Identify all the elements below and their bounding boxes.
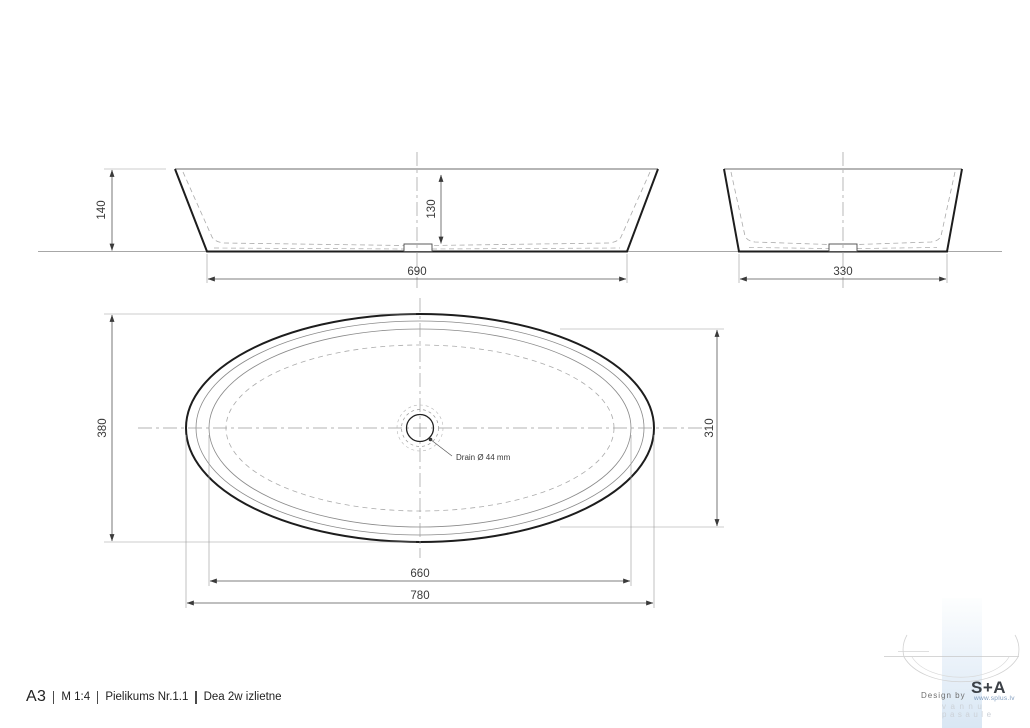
sheet-format: A3 [26, 688, 46, 706]
logo-tagline-word2: pasaule [942, 710, 995, 719]
title-separator [53, 691, 54, 704]
drain-label: Drain Ø 44 mm [456, 453, 511, 462]
logo-website: www.splus.lv [974, 695, 1015, 702]
dim-130-label: 130 [426, 199, 438, 218]
side-view: 330 [724, 152, 962, 288]
dim-140-label: 140 [96, 200, 108, 219]
dim-310-label: 310 [704, 418, 716, 437]
front-outline [175, 169, 658, 252]
side-inner-dashed-right [857, 172, 955, 245]
front-view: 140 130 690 [96, 152, 658, 288]
front-drain [404, 244, 432, 252]
dim-780-label: 780 [410, 590, 429, 602]
technical-drawing-canvas: 140 130 690 [0, 0, 1030, 728]
title-separator [97, 691, 98, 704]
dim-140: 140 [96, 169, 166, 251]
watermark-rim-arcs [903, 635, 1019, 657]
dim-130: 130 [426, 175, 441, 244]
drawing-sheet: 140 130 690 [0, 0, 1030, 728]
dim-380-label: 380 [97, 418, 109, 437]
front-inner-dashed-left [183, 172, 404, 246]
drain-leader-line [431, 440, 453, 457]
top-view: Drain Ø 44 mm 380 310 660 [97, 298, 724, 608]
drawing-scale: M 1:4 [61, 691, 90, 703]
dim-330-label: 330 [833, 266, 852, 278]
dim-660-label: 660 [410, 568, 429, 580]
side-inner-dashed-left [731, 172, 829, 245]
product-name: Dea 2w izlietne [204, 691, 282, 703]
watermark-bowl-inner [912, 657, 1009, 677]
title-block: A3 M 1:4 Pielikums Nr.1.1 Dea 2w izlietn… [26, 688, 282, 706]
appendix-number: Pielikums Nr.1.1 [105, 691, 188, 703]
front-inner-dashed-right [432, 172, 650, 246]
design-by-label: Design by [921, 691, 966, 700]
dim-690-label: 690 [407, 266, 426, 278]
title-separator [195, 691, 196, 704]
top-drain: Drain Ø 44 mm [397, 405, 511, 462]
